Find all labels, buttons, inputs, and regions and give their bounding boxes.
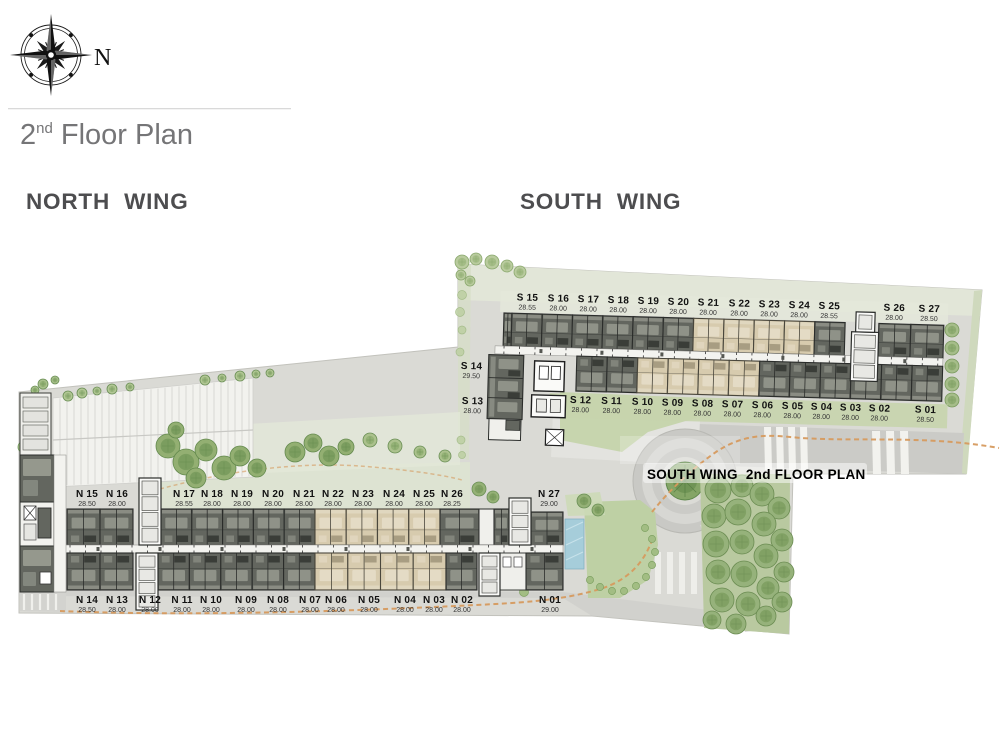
svg-text:28.00: 28.00	[324, 501, 342, 508]
svg-text:N 13: N 13	[106, 595, 128, 606]
svg-text:28.00: 28.00	[141, 607, 159, 614]
svg-text:28.55: 28.55	[175, 501, 193, 508]
svg-text:S 12: S 12	[570, 395, 592, 407]
svg-text:N 23: N 23	[352, 489, 374, 500]
svg-text:28.00: 28.00	[108, 501, 126, 508]
svg-text:28.00: 28.00	[602, 408, 620, 415]
svg-text:S 19: S 19	[638, 296, 660, 308]
svg-text:N 27: N 27	[538, 489, 560, 500]
svg-text:28.00: 28.00	[663, 409, 681, 416]
svg-text:29.00: 29.00	[541, 607, 559, 614]
svg-text:28.00: 28.00	[549, 305, 567, 312]
svg-text:28.00: 28.00	[730, 310, 748, 317]
svg-text:28.00: 28.00	[233, 501, 251, 508]
svg-text:28.00: 28.00	[203, 501, 221, 508]
svg-text:S 04: S 04	[811, 402, 833, 414]
svg-text:28.00: 28.00	[579, 306, 597, 313]
svg-text:S 10: S 10	[632, 397, 654, 409]
svg-text:28.00: 28.00	[396, 607, 414, 614]
svg-text:28.00: 28.00	[812, 414, 830, 421]
svg-text:28.00: 28.00	[453, 607, 471, 614]
svg-text:28.00: 28.00	[699, 309, 717, 316]
svg-text:28.00: 28.00	[264, 501, 282, 508]
svg-text:28.00: 28.00	[885, 315, 903, 322]
svg-text:N 25: N 25	[413, 489, 435, 500]
svg-text:28.00: 28.00	[760, 311, 778, 318]
svg-text:28.00: 28.00	[237, 607, 255, 614]
svg-text:S 18: S 18	[608, 295, 630, 307]
svg-text:N 09: N 09	[235, 595, 257, 606]
svg-text:N 18: N 18	[201, 489, 223, 500]
svg-text:28.00: 28.00	[173, 607, 191, 614]
svg-text:28.00: 28.00	[385, 501, 403, 508]
svg-text:28.00: 28.00	[790, 312, 808, 319]
svg-text:S 26: S 26	[883, 303, 905, 315]
svg-text:S 16: S 16	[548, 293, 570, 305]
svg-text:28.50: 28.50	[916, 417, 934, 424]
svg-text:S 07: S 07	[722, 399, 744, 411]
svg-text:N 19: N 19	[231, 489, 253, 500]
svg-text:29.00: 29.00	[540, 501, 558, 508]
svg-text:N 01: N 01	[539, 595, 561, 606]
svg-text:28.00: 28.00	[609, 307, 627, 314]
svg-text:28.00: 28.00	[639, 308, 657, 315]
svg-text:S 14: S 14	[461, 361, 483, 373]
svg-text:NORTH WING: NORTH WING	[26, 189, 189, 214]
svg-text:S 23: S 23	[758, 299, 780, 311]
svg-text:S 13: S 13	[462, 396, 484, 408]
svg-text:S 02: S 02	[869, 403, 891, 415]
svg-text:28.00: 28.00	[415, 501, 433, 508]
svg-text:N 10: N 10	[200, 595, 222, 606]
svg-text:28.00: 28.00	[295, 501, 313, 508]
svg-text:S 03: S 03	[840, 402, 862, 414]
svg-text:28.55: 28.55	[518, 304, 536, 311]
svg-text:28.25: 28.25	[443, 501, 461, 508]
svg-text:S 01: S 01	[915, 405, 937, 417]
svg-text:N 11: N 11	[171, 595, 193, 606]
svg-text:N 21: N 21	[293, 489, 315, 500]
svg-text:N 08: N 08	[267, 595, 289, 606]
svg-text:N 15: N 15	[76, 489, 98, 500]
svg-text:28.00: 28.00	[870, 415, 888, 422]
svg-text:28.00: 28.00	[633, 409, 651, 416]
svg-text:N 22: N 22	[322, 489, 344, 500]
svg-text:28.00: 28.00	[425, 607, 443, 614]
svg-text:28.00: 28.00	[841, 414, 859, 421]
svg-text:28.00: 28.00	[753, 412, 771, 419]
svg-text:SOUTH WING: SOUTH WING	[520, 189, 681, 214]
svg-text:28.50: 28.50	[78, 501, 96, 508]
svg-text:N 05: N 05	[358, 595, 380, 606]
svg-text:S 24: S 24	[788, 300, 810, 312]
svg-text:N 04: N 04	[394, 595, 416, 606]
svg-text:28.00: 28.00	[571, 407, 589, 414]
svg-text:28.00: 28.00	[723, 411, 741, 418]
svg-text:N 17: N 17	[173, 489, 195, 500]
svg-text:28.00: 28.00	[327, 607, 345, 614]
svg-text:N 03: N 03	[423, 595, 445, 606]
svg-text:N 24: N 24	[383, 489, 405, 500]
svg-text:28.00: 28.00	[360, 607, 378, 614]
svg-text:SOUTH WING 2nd FLOOR PLAN: SOUTH WING 2nd FLOOR PLAN	[647, 467, 866, 482]
svg-text:28.00: 28.00	[354, 501, 372, 508]
svg-text:28.00: 28.00	[269, 607, 287, 614]
svg-text:28.00: 28.00	[301, 607, 319, 614]
svg-text:S 27: S 27	[918, 304, 940, 316]
svg-text:28.00: 28.00	[108, 607, 126, 614]
svg-text:S 06: S 06	[752, 400, 774, 412]
svg-text:N 12: N 12	[139, 595, 161, 606]
svg-text:28.50: 28.50	[920, 316, 938, 323]
svg-text:N 26: N 26	[441, 489, 463, 500]
svg-text:28.00: 28.00	[783, 413, 801, 420]
svg-text:N 07: N 07	[299, 595, 321, 606]
svg-text:28.00: 28.00	[202, 607, 220, 614]
svg-text:28.00: 28.00	[463, 408, 481, 415]
svg-text:S 09: S 09	[662, 397, 684, 409]
svg-text:S 20: S 20	[668, 297, 690, 309]
svg-text:S 08: S 08	[692, 398, 714, 410]
svg-text:28.50: 28.50	[78, 607, 96, 614]
svg-text:S 15: S 15	[517, 292, 539, 304]
svg-text:S 21: S 21	[698, 297, 720, 309]
svg-text:N 16: N 16	[106, 489, 128, 500]
svg-text:S 22: S 22	[729, 298, 751, 310]
svg-text:N: N	[94, 45, 111, 71]
svg-text:S 25: S 25	[818, 301, 840, 313]
svg-text:N 20: N 20	[262, 489, 284, 500]
svg-text:S 11: S 11	[601, 396, 622, 408]
svg-text:28.55: 28.55	[820, 313, 838, 320]
svg-text:S 17: S 17	[578, 294, 600, 306]
svg-text:N 02: N 02	[451, 595, 473, 606]
svg-text:N 06: N 06	[325, 595, 347, 606]
svg-text:S 05: S 05	[782, 401, 804, 413]
svg-text:N 14: N 14	[76, 595, 98, 606]
svg-text:28.00: 28.00	[669, 309, 687, 316]
svg-text:28.00: 28.00	[693, 410, 711, 417]
svg-text:29.50: 29.50	[462, 373, 480, 380]
